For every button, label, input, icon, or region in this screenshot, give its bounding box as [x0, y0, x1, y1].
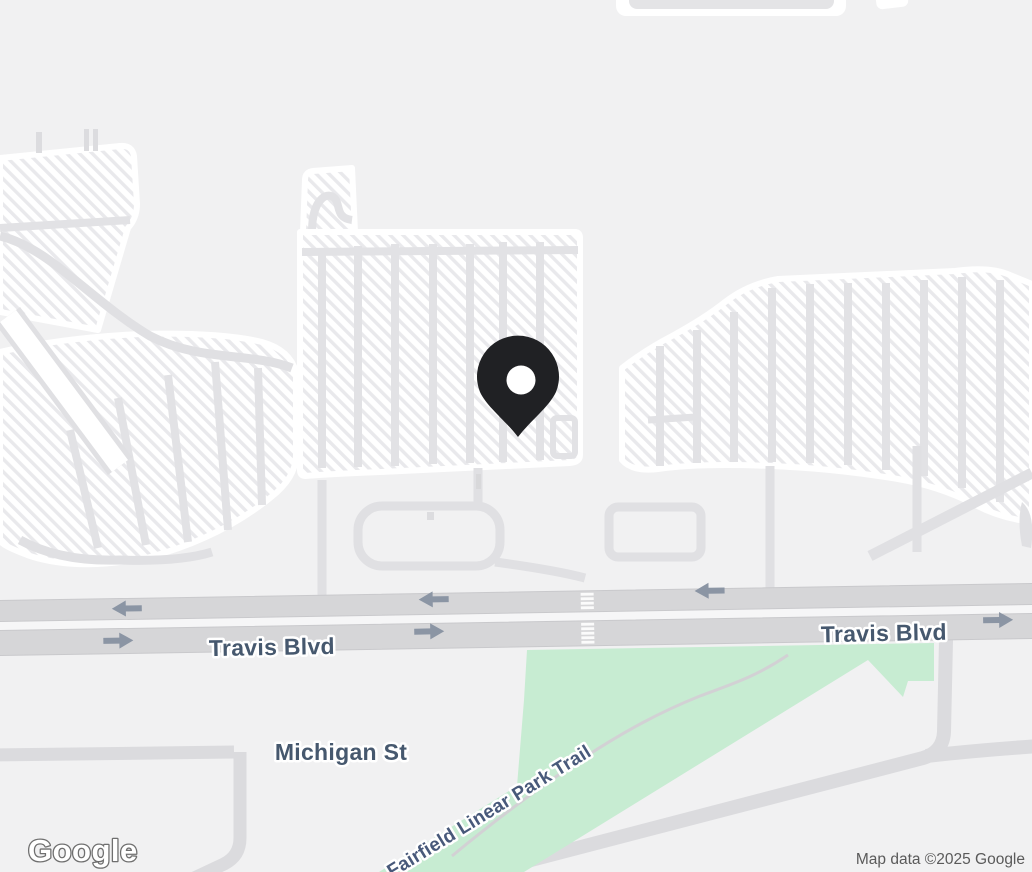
- map-tiles[interactable]: Travis Blvd Travis Blvd Michigan St Fair…: [0, 0, 1032, 872]
- map-attribution: Map data ©2025 Google: [856, 851, 1025, 868]
- road-label-michigan-st: Michigan St: [275, 739, 407, 765]
- road-label-travis-blvd-east: Travis Blvd: [821, 619, 948, 648]
- google-logo[interactable]: Google: [28, 833, 138, 868]
- road-label-travis-blvd-west: Travis Blvd: [209, 633, 335, 661]
- map-canvas[interactable]: Travis Blvd Travis Blvd Michigan St Fair…: [0, 0, 1032, 872]
